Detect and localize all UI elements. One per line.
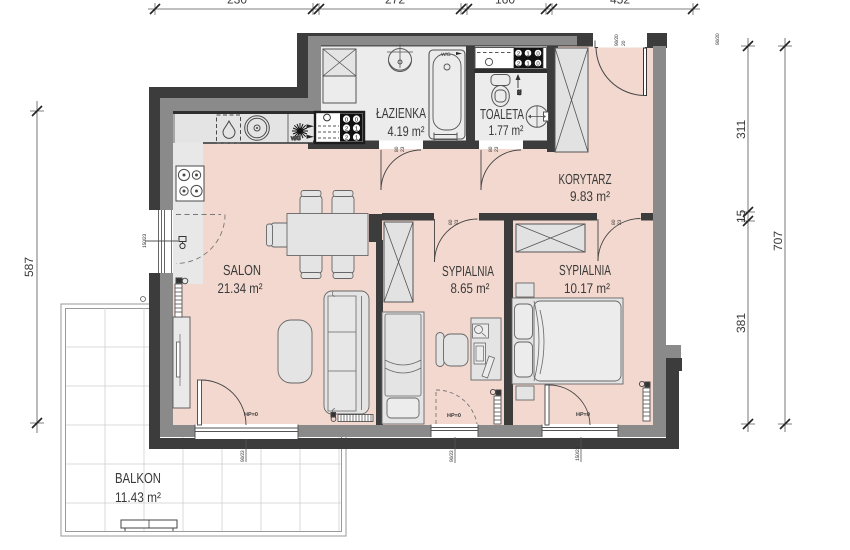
- svg-text:ŁAZIENKA: ŁAZIENKA: [376, 106, 426, 122]
- svg-text:707: 707: [771, 231, 785, 251]
- svg-text:W/G: W/G: [291, 136, 301, 142]
- svg-text:KORYTARZ: KORYTARZ: [559, 172, 612, 188]
- svg-text:160: 160: [495, 0, 515, 7]
- svg-text:4.19 m²: 4.19 m²: [388, 123, 425, 139]
- svg-text:23: 23: [617, 219, 623, 225]
- svg-text:150/23: 150/23: [575, 446, 581, 461]
- svg-text:TOALETA: TOALETA: [480, 107, 524, 123]
- svg-text:11.43 m²: 11.43 m²: [115, 489, 161, 505]
- svg-text:8.65 m²: 8.65 m²: [451, 280, 490, 296]
- svg-text:311: 311: [734, 120, 748, 139]
- svg-text:90/23: 90/23: [240, 450, 246, 462]
- svg-text:381: 381: [734, 313, 748, 333]
- svg-text:HP=0: HP=0: [447, 413, 461, 419]
- svg-text:20: 20: [621, 40, 627, 46]
- svg-text:BALKON: BALKON: [115, 471, 161, 487]
- svg-text:90/20: 90/20: [614, 34, 620, 46]
- svg-text:HP=0: HP=0: [244, 412, 258, 418]
- svg-text:SALON: SALON: [223, 263, 261, 279]
- svg-text:52: 52: [517, 89, 523, 95]
- svg-text:230: 230: [227, 0, 247, 7]
- svg-text:90/20: 90/20: [715, 33, 721, 45]
- svg-text:W/G: W/G: [441, 52, 451, 58]
- svg-text:90/23: 90/23: [449, 450, 455, 462]
- svg-text:10.17 m²: 10.17 m²: [564, 280, 610, 296]
- svg-text:587: 587: [22, 257, 36, 277]
- svg-text:SYPIALNIA: SYPIALNIA: [442, 264, 494, 280]
- svg-text:23: 23: [454, 219, 460, 225]
- svg-text:21.34 m²: 21.34 m²: [218, 280, 263, 296]
- svg-text:HP=0: HP=0: [576, 412, 590, 418]
- svg-text:1.77 m²: 1.77 m²: [489, 122, 524, 138]
- svg-text:452: 452: [610, 0, 630, 7]
- svg-text:SYPIALNIA: SYPIALNIA: [559, 263, 611, 279]
- svg-text:23: 23: [494, 146, 500, 152]
- svg-text:23: 23: [400, 146, 406, 152]
- svg-text:15: 15: [734, 209, 748, 223]
- svg-text:9.83 m²: 9.83 m²: [570, 188, 610, 204]
- svg-text:272: 272: [385, 0, 405, 7]
- svg-text:150/23: 150/23: [142, 233, 148, 248]
